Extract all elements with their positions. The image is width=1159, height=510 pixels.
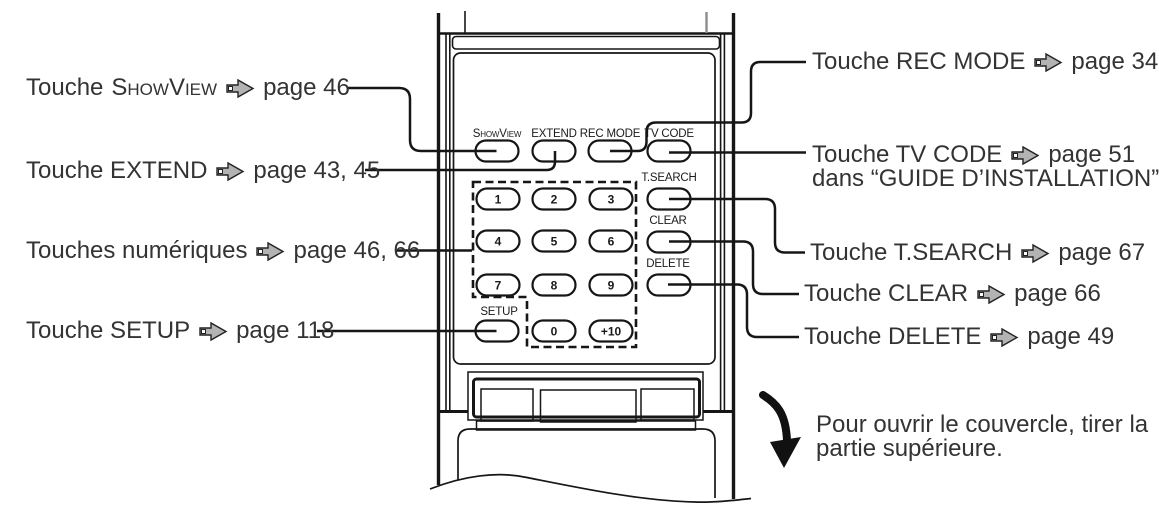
top-strip [453,37,720,50]
digit-label-1: 1 [495,193,502,207]
label-text: Touche T.SEARCH [810,240,1012,266]
callout-label-numeric: Touches numériques page 46, 66 [26,238,420,264]
page-arrow-icon [198,320,228,343]
callout-label-clear: Touche CLEAR page 66 [804,281,1101,307]
manual-figure: ShowView EXTEND REC MODE TV CODE T.SEARC… [0,0,1159,510]
callout-label-tsearch: Touche T.SEARCH page 67 [810,240,1145,266]
label-page-ref: page 67 [1058,240,1145,266]
open-cover-arrow-icon [763,395,801,468]
label-page-ref: page 49 [1027,324,1114,350]
flap-thick-frame [474,379,700,417]
button-label-recmode: REC MODE [580,128,641,140]
callout-line-showview [347,88,497,151]
cover-lower-shell [458,429,715,498]
digit-label-3: 3 [608,193,615,207]
page-arrow-icon [255,240,285,263]
label-page-ref: page 51 [1048,143,1135,167]
page-arrow-icon [1010,144,1040,167]
digit-label-0: 0 [551,325,558,339]
digit-label-8: 8 [551,279,558,293]
page-arrow-icon [225,77,255,100]
button-label-showview: ShowView [473,128,522,140]
page-arrow-icon [1020,242,1050,265]
label-text: Touche TV CODE [812,143,1002,167]
button-label-tvcode: TV CODE [644,128,694,140]
remote-flap [458,372,715,498]
label-keyword: ShowView [111,75,217,101]
digit-label-4: 4 [495,235,502,249]
label-text: Touche EXTEND [26,158,207,184]
digit-label-6: 6 [608,235,615,249]
label-page-ref: page 66 [1014,281,1101,307]
page-arrow-icon [1033,51,1063,74]
page-arrow-icon [215,160,245,183]
callout-label-recmode: Touche REC MODE page 34 [812,49,1158,75]
digit-label-plus10: +10 [601,325,622,339]
callout-label-showview: ToucheShowView page 46 [26,75,350,101]
flap-window-right [641,389,694,420]
callout-line-extend [365,151,555,170]
cover-note: Pour ouvrir le couvercle, tirer la parti… [816,413,1148,461]
callout-label-extend: Touche EXTEND page 43, 45 [26,158,380,184]
cover-note-line1: Pour ouvrir le couvercle, tirer la [816,413,1148,437]
cover-note-line2: partie supérieure. [816,437,1148,461]
label-text: Touche CLEAR [804,281,968,307]
label-page-ref: page 118 [236,318,334,344]
digit-label-5: 5 [551,235,558,249]
label-page-ref: page 46 [263,75,350,101]
page-arrow-icon [976,283,1006,306]
digit-label-7: 7 [495,279,502,293]
torn-edge-wave [430,475,751,502]
callout-label-setup: Touche SETUP page 118 [26,318,334,344]
callout-label-delete: Touche DELETE page 49 [804,324,1114,350]
callout-label-tvcode: Touche TV CODE page 51 dans “GUIDE D’INS… [812,143,1159,191]
label-text-line2: dans “GUIDE D’INSTALLATION” [812,167,1159,191]
label-text: Touches numériques [26,238,247,264]
label-page-ref: page 46, 66 [293,238,420,264]
label-text: Touche DELETE [804,324,981,350]
digit-label-9: 9 [608,279,615,293]
label-text: Touche REC MODE [812,49,1025,75]
button-label-setup: SETUP [480,306,518,318]
label-text: Touche [26,75,103,101]
button-label-extend: EXTEND [531,128,576,140]
label-page-ref: page 34 [1071,49,1158,75]
button-label-delete: DELETE [646,258,690,270]
button-tvcode [648,141,691,162]
digit-label-2: 2 [551,193,558,207]
label-text: Touche SETUP [26,318,190,344]
button-label-clear: CLEAR [649,215,686,227]
page-arrow-icon [989,326,1019,349]
label-page-ref: page 43, 45 [253,158,380,184]
button-label-tsearch: T.SEARCH [641,172,696,184]
